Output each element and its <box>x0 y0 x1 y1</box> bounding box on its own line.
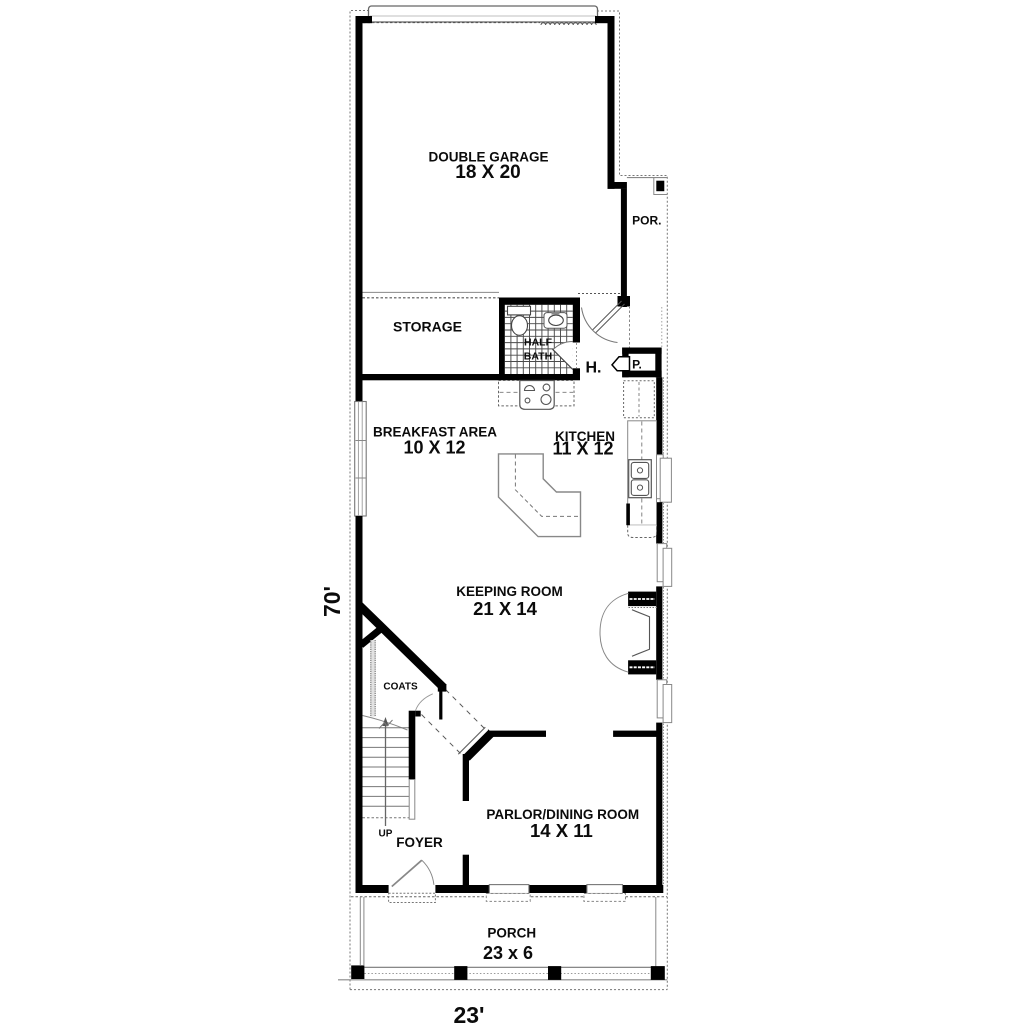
svg-text:70': 70' <box>319 586 345 617</box>
svg-text:HALF: HALF <box>524 337 553 349</box>
svg-text:POR.: POR. <box>632 214 661 228</box>
svg-text:PORCH: PORCH <box>487 926 536 941</box>
svg-text:COATS: COATS <box>383 682 418 693</box>
svg-text:H.: H. <box>586 360 602 377</box>
svg-text:10 X 12: 10 X 12 <box>403 438 465 458</box>
svg-text:BATH: BATH <box>524 351 552 363</box>
svg-text:UP: UP <box>379 829 393 840</box>
svg-text:KEEPING ROOM: KEEPING ROOM <box>456 584 563 599</box>
svg-text:11 X 12: 11 X 12 <box>552 439 613 459</box>
svg-text:P.: P. <box>632 358 642 372</box>
svg-text:18 X 20: 18 X 20 <box>455 162 521 183</box>
svg-text:FOYER: FOYER <box>396 835 443 850</box>
svg-text:23 x 6: 23 x 6 <box>483 943 533 963</box>
svg-text:23': 23' <box>453 1002 484 1024</box>
svg-text:21 X 14: 21 X 14 <box>473 598 537 619</box>
svg-text:STORAGE: STORAGE <box>393 319 462 335</box>
svg-text:14 X 11: 14 X 11 <box>530 820 593 841</box>
